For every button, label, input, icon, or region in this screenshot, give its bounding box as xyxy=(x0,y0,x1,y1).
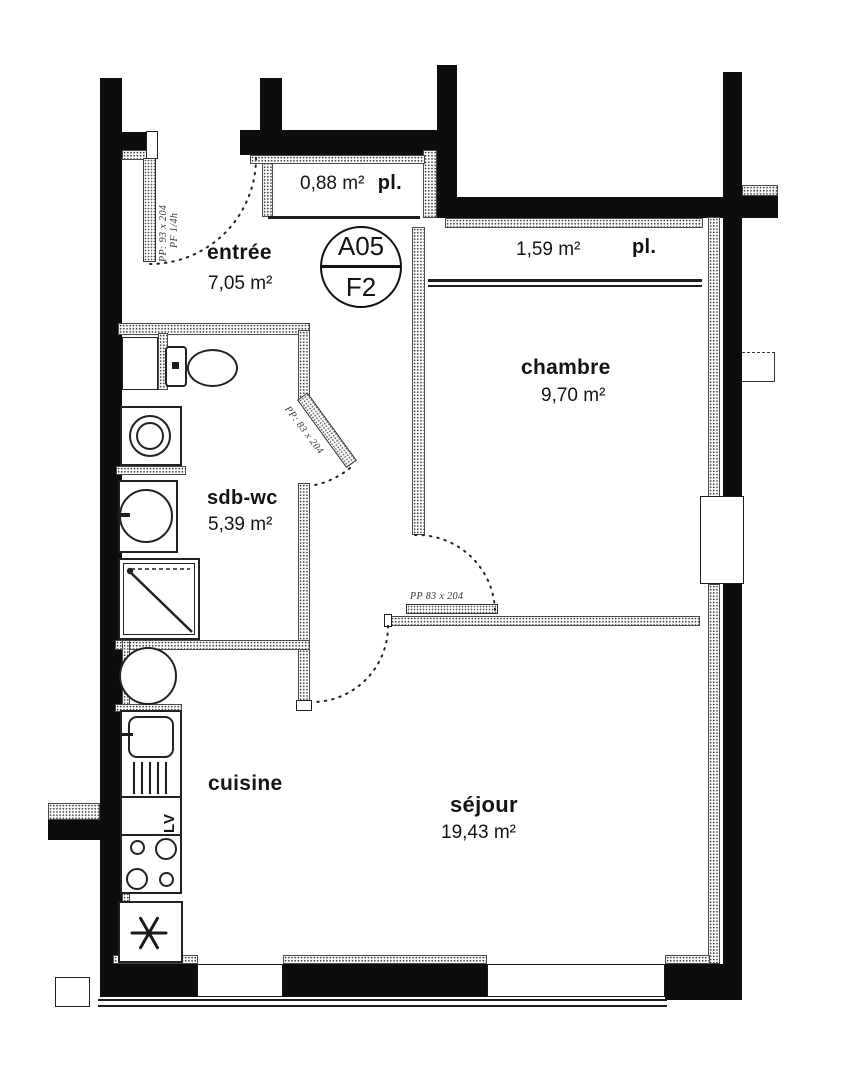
closet-entree-name: pl. xyxy=(378,172,402,194)
lining-under-washer xyxy=(116,466,186,475)
sink-drainer-3 xyxy=(149,762,151,794)
room-name-chambre: chambre xyxy=(521,356,611,380)
closet-chambre-area: 1,59 m² xyxy=(516,239,580,261)
wall-sdb-top xyxy=(118,323,310,335)
sink-drainer-1 xyxy=(133,762,135,794)
wall-closet-entree-right xyxy=(423,150,437,218)
lining-bottom-mid xyxy=(283,955,487,964)
window-sejour xyxy=(487,964,665,997)
sink-bowl xyxy=(128,716,174,758)
fridge xyxy=(118,901,183,963)
duct-box xyxy=(122,337,158,390)
unit-code: A05 xyxy=(322,231,400,262)
washing-machine-drum-inner xyxy=(136,422,164,450)
facade-line-1 xyxy=(98,999,667,1001)
sejour-door-spec: PP 83 x 204 xyxy=(410,591,463,602)
lining-right-upper xyxy=(708,217,720,498)
closet-chambre-front-1 xyxy=(428,279,702,282)
entrance-door-spec-line2: PF 1/4h xyxy=(169,205,180,262)
water-heater xyxy=(119,647,177,705)
window-right-wall xyxy=(700,496,744,584)
closet-entree-area: 0,88 m² xyxy=(300,173,364,194)
wall-bottom-left-block xyxy=(100,964,198,997)
chambre-door-leaf xyxy=(406,604,498,614)
closet-entree-label: 0,88 m² pl. xyxy=(300,172,402,195)
room-area-chambre: 9,70 m² xyxy=(541,385,605,407)
wall-bottom-mid-block xyxy=(283,964,487,997)
wall-chambre-left xyxy=(412,227,425,535)
closet-chambre-name: pl. xyxy=(632,236,656,259)
unit-badge: A05 F2 xyxy=(320,226,402,308)
lining-bottom-right xyxy=(665,955,710,964)
unit-type: F2 xyxy=(322,272,400,303)
sink-drainer-4 xyxy=(157,762,159,794)
sink-drainer-5 xyxy=(165,762,167,794)
lining-stub-right xyxy=(742,185,778,196)
room-area-entree: 7,05 m² xyxy=(208,273,272,295)
room-name-sdb: sdb-wc xyxy=(207,487,278,510)
hob-burner-tl xyxy=(130,840,145,855)
notch-bottom-left xyxy=(55,977,90,1007)
entrance-door-spec: PP: 93 x 204 PF 1/4h xyxy=(158,205,180,262)
lining-closet-chambre-top xyxy=(445,218,703,228)
entrance-door-jamb xyxy=(146,131,158,159)
wall-right-lower xyxy=(723,584,742,1000)
sdb-door-swing-arc xyxy=(310,468,350,486)
wall-bottom-right-corner xyxy=(665,964,725,1000)
vent-right-wall xyxy=(742,352,775,382)
entrance-door-spec-line1: PP: 93 x 204 xyxy=(158,205,169,262)
wall-hall-sejour xyxy=(390,616,700,626)
room-area-sdb: 5,39 m² xyxy=(208,514,272,536)
room-name-entree: entrée xyxy=(207,241,272,265)
facade-line-2 xyxy=(98,1005,667,1007)
shower-tray-inner xyxy=(123,563,195,635)
floor-plan: LV A05 F2 entrée 7,05 m² 0,88 m² pl. 1,5… xyxy=(0,0,865,1080)
closet-chambre-front-2 xyxy=(428,285,702,287)
hall-wall-end-cap xyxy=(384,614,392,627)
wall-divider-entry-chambre xyxy=(437,65,457,218)
lining-right-lower xyxy=(708,584,720,964)
wall-stub-left-outer xyxy=(48,820,100,840)
lining-closet-entree-top xyxy=(250,155,425,164)
unit-badge-divider xyxy=(321,265,401,268)
room-name-cuisine: cuisine xyxy=(208,772,282,796)
toilet-bowl xyxy=(187,349,238,387)
room-name-sejour: séjour xyxy=(450,792,518,818)
entrance-door-leaf xyxy=(143,158,156,262)
wall-top-chambre xyxy=(437,197,727,218)
wall-stub-right xyxy=(742,196,778,218)
hob-burner-br xyxy=(159,872,174,887)
wall-stub-left-outer-lining xyxy=(48,803,100,820)
toilet-tank-dot xyxy=(172,362,179,369)
wall-right-upper xyxy=(723,72,742,496)
room-area-sejour: 19,43 m² xyxy=(441,822,516,844)
closet-entree-front xyxy=(268,216,420,219)
sejour-door-swing-arc xyxy=(314,626,388,702)
window-kitchen xyxy=(197,964,283,997)
wall-closet-entree-left xyxy=(262,155,273,217)
sink-drainer-2 xyxy=(141,762,143,794)
wall-sdb-right-upper xyxy=(298,330,310,402)
sink-faucet xyxy=(121,733,133,736)
wall-sdb-right-lower xyxy=(298,483,310,710)
wall-stub-top-mid xyxy=(260,78,282,134)
dishwasher-label: LV xyxy=(161,813,178,833)
sdb-wall-end-cap xyxy=(296,700,312,711)
hob-burner-tr xyxy=(155,838,177,860)
washbasin-faucet xyxy=(117,513,130,517)
hob-burner-bl xyxy=(126,868,148,890)
